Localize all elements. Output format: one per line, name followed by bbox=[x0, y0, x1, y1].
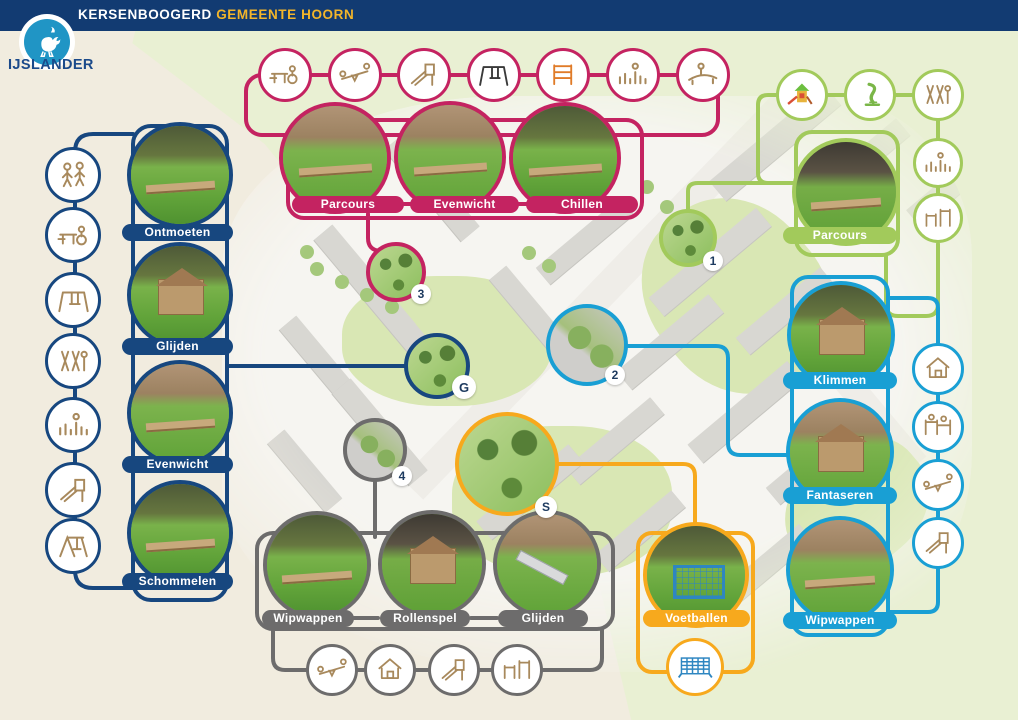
label-wipwappen-blue: Wipwappen bbox=[783, 612, 897, 629]
playhouse-icon bbox=[364, 644, 416, 696]
seesaw-icon bbox=[306, 644, 358, 696]
playhouse-icon bbox=[912, 343, 964, 395]
swing-icon bbox=[45, 272, 101, 328]
label-wipwappen-gray: Wipwappen bbox=[262, 610, 354, 627]
playground-plan-poster: Ontmoeten Glijden Evenwicht Schommelen P… bbox=[0, 0, 1018, 720]
stepping-posts-icon bbox=[606, 48, 660, 102]
label-rollenspel: Rollenspel bbox=[380, 610, 470, 627]
map-badge-3: 3 bbox=[411, 284, 431, 304]
label-chillen: Chillen bbox=[526, 196, 638, 213]
label-parcours-pink: Parcours bbox=[292, 196, 404, 213]
map-badge-4: 4 bbox=[392, 466, 412, 486]
picnic-bench-wheelchair-icon bbox=[258, 48, 312, 102]
label-evenwicht-navy: Evenwicht bbox=[122, 456, 233, 473]
spring-rider-icon bbox=[844, 69, 896, 121]
label-glijden-gray: Glijden bbox=[498, 610, 588, 627]
tower-slide-icon bbox=[912, 517, 964, 569]
climbing-frame-icon bbox=[536, 48, 590, 102]
map-badge-1: 1 bbox=[703, 251, 723, 271]
map-badge-s: S bbox=[535, 496, 557, 518]
label-schommelen: Schommelen bbox=[122, 573, 233, 590]
project-name: KERSENBOOGERD bbox=[78, 7, 212, 22]
tower-slide-icon bbox=[428, 644, 480, 696]
climbing-posts-icon bbox=[912, 69, 964, 121]
play-tower-icon bbox=[45, 462, 101, 518]
stepping-poles-icon bbox=[45, 397, 101, 453]
map-spot-2: 2 bbox=[546, 304, 628, 386]
seesaw-icon bbox=[328, 48, 382, 102]
balance-beam-icon bbox=[676, 48, 730, 102]
slide-icon bbox=[397, 48, 451, 102]
label-parcours-green: Parcours bbox=[783, 227, 897, 244]
label-fantaseren: Fantaseren bbox=[783, 487, 897, 504]
photo-rollenspel bbox=[378, 510, 486, 618]
map-spot-3: 3 bbox=[366, 242, 426, 302]
stepping-posts-icon bbox=[913, 138, 963, 188]
map-spot-s: S bbox=[455, 412, 559, 516]
two-children-icon bbox=[45, 147, 101, 203]
picnic-bench-wheelchair-icon bbox=[45, 207, 101, 263]
photo-glijden-gray bbox=[493, 510, 601, 618]
label-voetballen: Voetballen bbox=[643, 610, 750, 627]
photo-wipwappen-gray bbox=[263, 511, 371, 619]
soccer-goal-icon bbox=[666, 638, 724, 696]
map-badge-g: G bbox=[452, 375, 476, 399]
label-klimmen: Klimmen bbox=[783, 372, 897, 389]
photo-glijden-navy bbox=[127, 242, 233, 348]
photo-ontmoeten bbox=[127, 122, 233, 228]
page-title: KERSENBOOGERD GEMEENTE HOORN bbox=[78, 7, 354, 22]
brand-name: IJSLANDER bbox=[8, 57, 94, 73]
frame-swing-icon bbox=[45, 518, 101, 574]
photo-evenwicht-navy bbox=[127, 360, 233, 466]
label-glijden-navy: Glijden bbox=[122, 338, 233, 355]
parallel-bars-icon bbox=[491, 644, 543, 696]
parallel-bars-icon bbox=[913, 193, 963, 243]
play-bars-icon bbox=[912, 401, 964, 453]
photo-schommelen bbox=[127, 480, 233, 586]
map-spot-1: 1 bbox=[659, 209, 717, 267]
label-ontmoeten: Ontmoeten bbox=[122, 224, 233, 241]
map-badge-2: 2 bbox=[605, 365, 625, 385]
seesaw-icon bbox=[912, 459, 964, 511]
climbing-posts-icon bbox=[45, 333, 101, 389]
color-play-tower-icon bbox=[776, 69, 828, 121]
map-spot-4: 4 bbox=[343, 418, 407, 482]
label-evenwicht-pink: Evenwicht bbox=[410, 196, 519, 213]
map-spot-g: G bbox=[404, 333, 470, 399]
photo-wipwappen-blue bbox=[786, 516, 894, 624]
swing-icon bbox=[467, 48, 521, 102]
municipality-name: GEMEENTE HOORN bbox=[216, 7, 354, 22]
